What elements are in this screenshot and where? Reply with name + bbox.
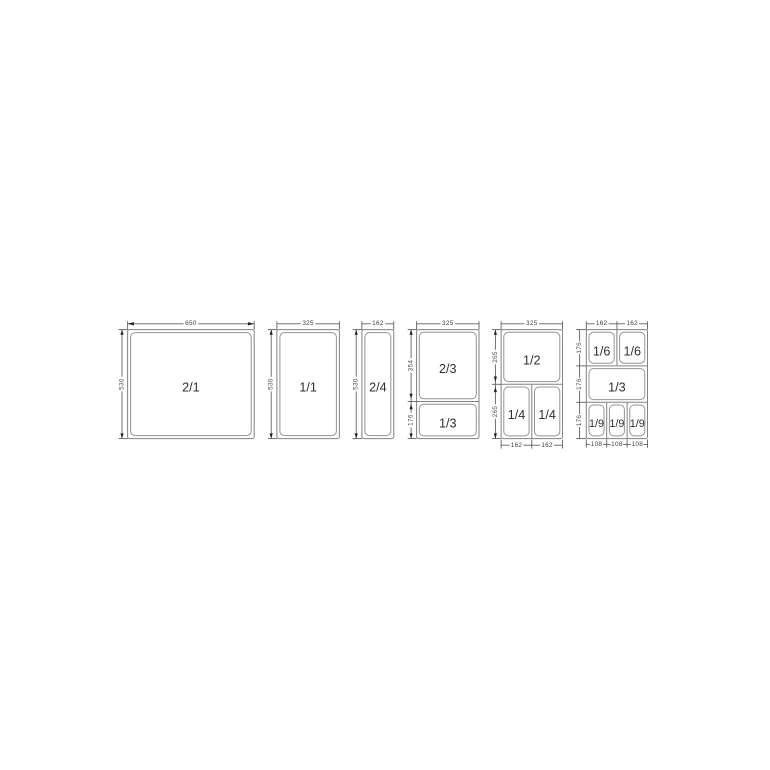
svg-text:325: 325 (442, 320, 454, 327)
svg-text:1/2: 1/2 (523, 354, 541, 368)
svg-text:176: 176 (576, 415, 583, 427)
svg-text:530: 530 (268, 378, 275, 390)
svg-text:176: 176 (576, 378, 583, 390)
svg-text:108: 108 (632, 441, 644, 448)
svg-text:325: 325 (526, 320, 538, 327)
svg-text:530: 530 (119, 378, 126, 390)
svg-text:354: 354 (408, 360, 415, 372)
svg-text:530: 530 (353, 378, 360, 390)
svg-text:176: 176 (408, 414, 415, 426)
svg-text:1/4: 1/4 (538, 408, 556, 422)
svg-text:325: 325 (302, 320, 314, 327)
svg-text:108: 108 (611, 441, 623, 448)
svg-text:265: 265 (492, 351, 499, 363)
svg-text:162: 162 (541, 442, 553, 449)
svg-text:2/4: 2/4 (369, 381, 387, 395)
svg-text:2/1: 2/1 (182, 381, 200, 395)
svg-text:1/1: 1/1 (299, 381, 317, 395)
svg-text:1/9: 1/9 (589, 418, 604, 430)
svg-text:265: 265 (492, 406, 499, 418)
svg-text:650: 650 (185, 320, 197, 327)
svg-text:176: 176 (576, 342, 583, 354)
svg-text:2/3: 2/3 (439, 362, 457, 376)
svg-text:162: 162 (626, 320, 638, 327)
svg-text:162: 162 (596, 320, 608, 327)
svg-text:1/3: 1/3 (608, 381, 626, 395)
svg-text:162: 162 (511, 442, 523, 449)
svg-text:108: 108 (591, 441, 603, 448)
svg-text:1/6: 1/6 (593, 344, 611, 358)
svg-text:1/9: 1/9 (609, 418, 624, 430)
svg-text:162: 162 (372, 320, 384, 327)
svg-text:1/4: 1/4 (508, 408, 526, 422)
svg-text:1/3: 1/3 (439, 417, 457, 431)
svg-text:1/6: 1/6 (623, 344, 641, 358)
svg-text:1/9: 1/9 (630, 418, 645, 430)
